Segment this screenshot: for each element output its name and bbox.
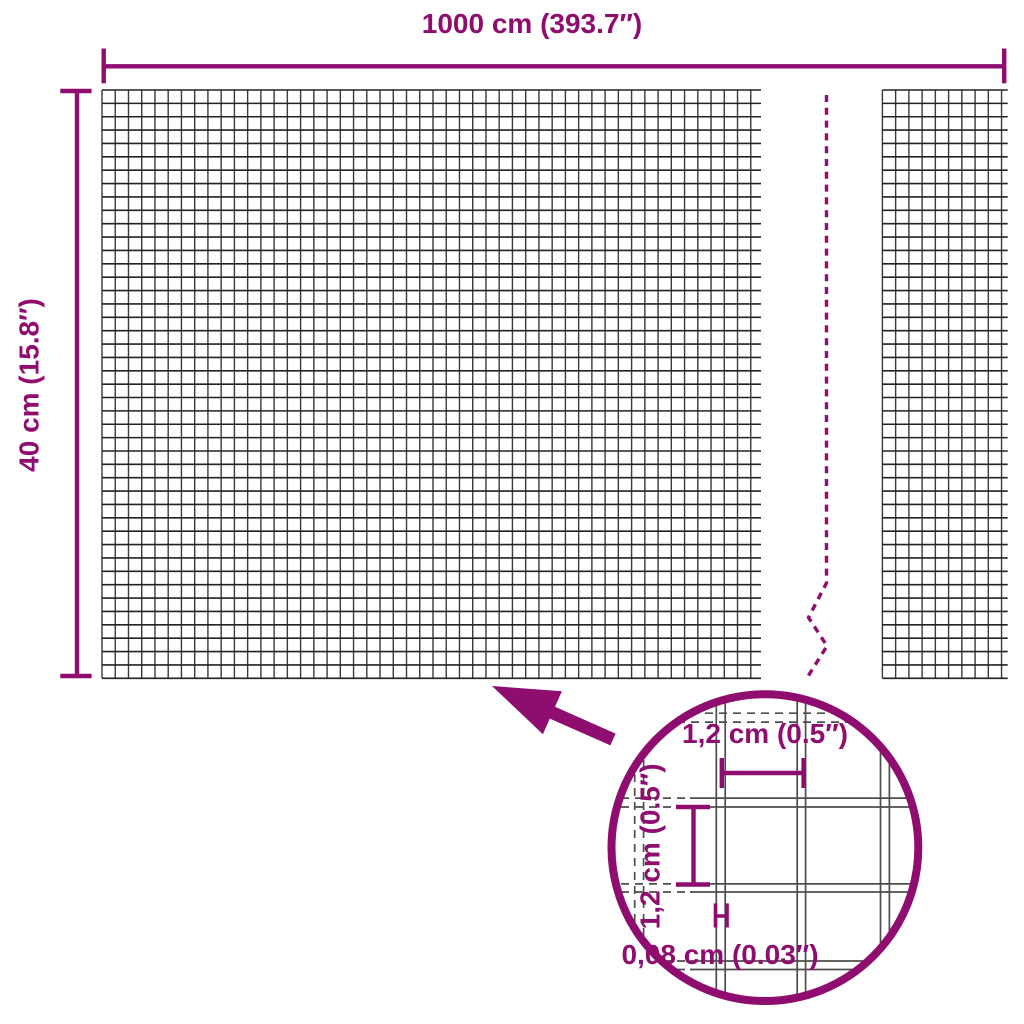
svg-text:40 cm (15.8″): 40 cm (15.8″) [14, 298, 45, 472]
svg-text:1,2 cm (0.5″): 1,2 cm (0.5″) [635, 763, 666, 929]
svg-text:0,08 cm (0.03″): 0,08 cm (0.03″) [621, 939, 818, 970]
svg-text:1,2 cm (0.5″): 1,2 cm (0.5″) [682, 718, 848, 749]
svg-text:1000 cm (393.7″): 1000 cm (393.7″) [422, 8, 642, 39]
